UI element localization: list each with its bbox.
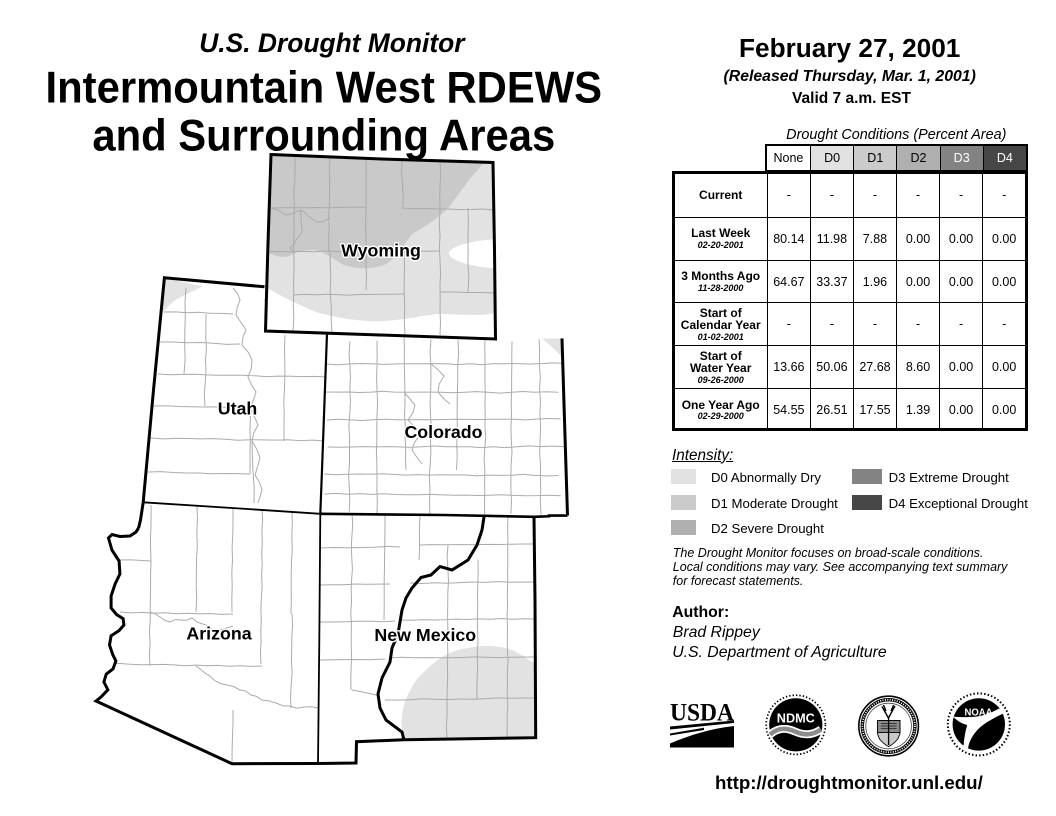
svg-text:NOAA: NOAA xyxy=(965,707,993,719)
svg-text:NDMC: NDMC xyxy=(777,712,815,726)
